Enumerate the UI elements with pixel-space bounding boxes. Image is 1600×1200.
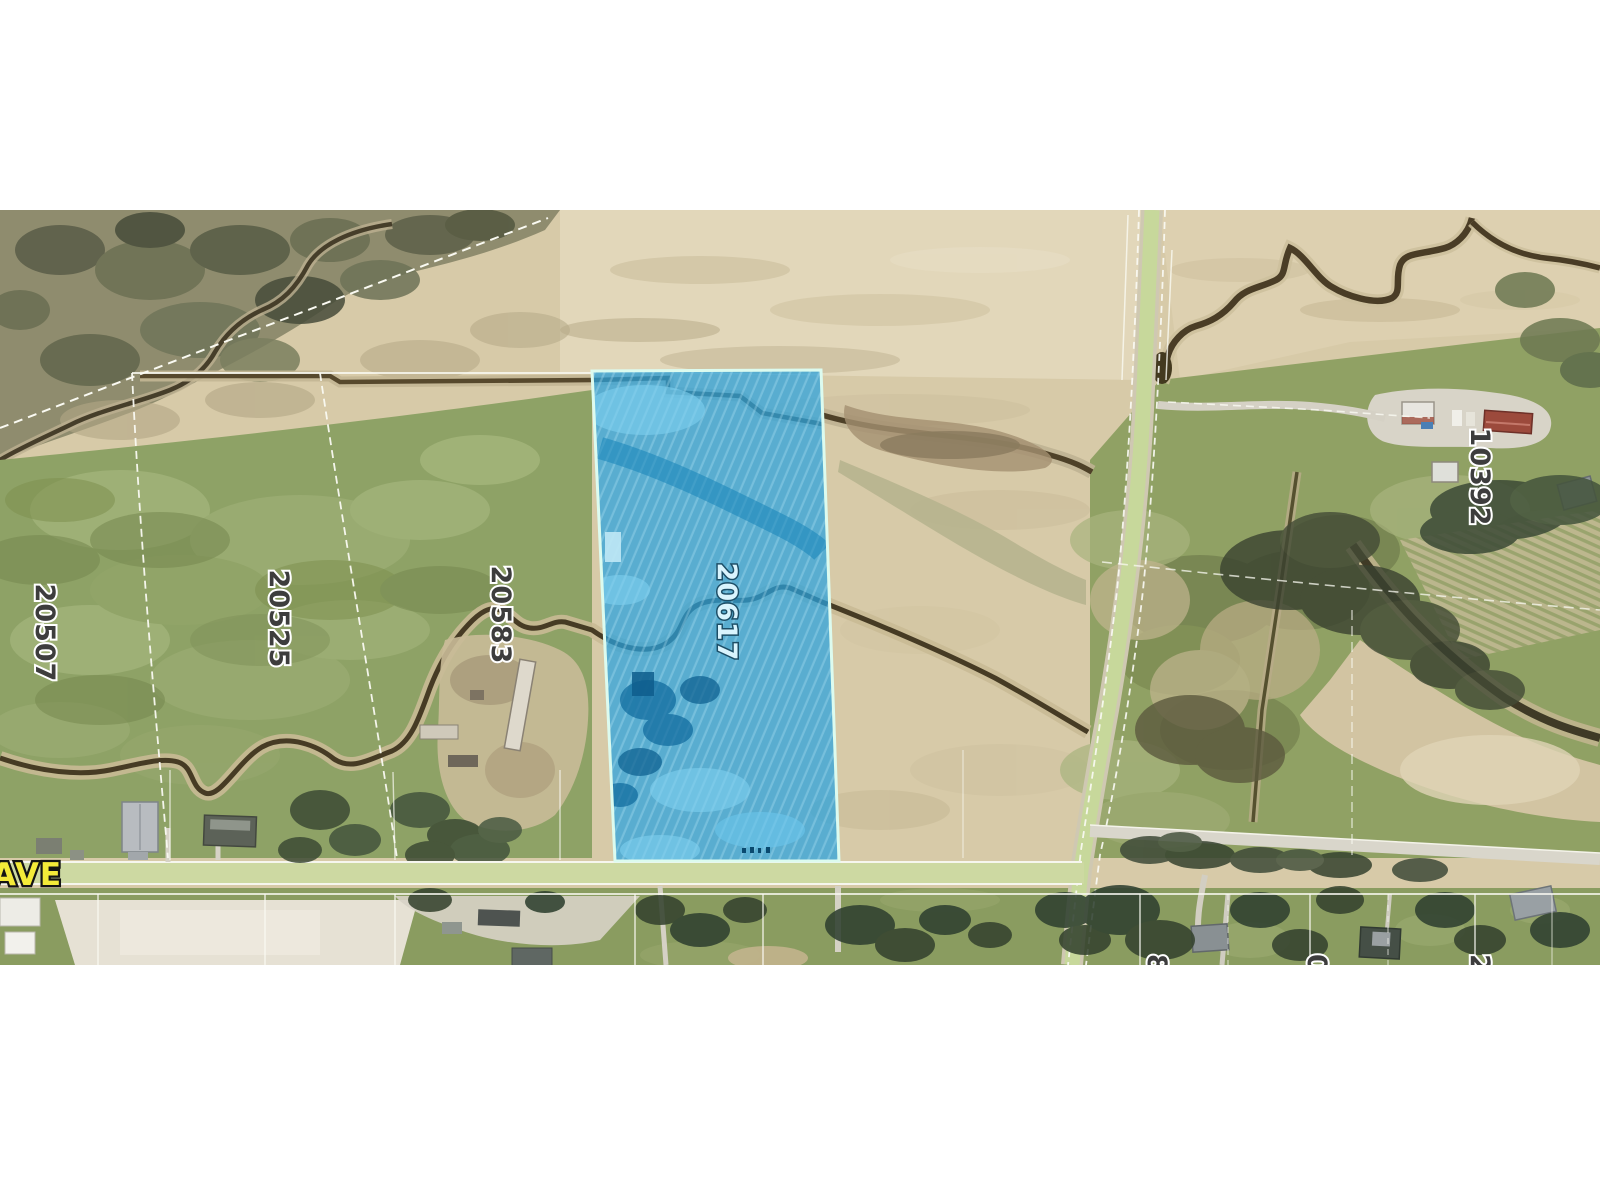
farm-shed	[1432, 462, 1458, 482]
partial-parcel-label-8: 8	[1141, 954, 1172, 965]
road-avenue	[0, 862, 1084, 884]
aerial-map-image: 20507 20525 20583 20617 10392 8 0 2 AVE	[0, 210, 1600, 965]
parcel-label-20525: 20525	[263, 570, 294, 669]
shed-in-parcel	[605, 532, 621, 562]
street-label-ave: AVE	[0, 857, 62, 893]
letterbox-bottom	[0, 965, 1600, 1200]
parcel-label-20507: 20507	[29, 584, 60, 683]
parcel-label-10392: 10392	[1464, 428, 1495, 527]
letterbox-top	[0, 0, 1600, 210]
partial-parcel-label-0: 0	[1301, 954, 1332, 965]
house	[1191, 924, 1229, 952]
parcel-label-20583: 20583	[485, 566, 516, 665]
map-canvas: 20507 20525 20583 20617 10392 8 0 2 AVE	[0, 210, 1600, 965]
building-in-parcel	[632, 672, 654, 696]
screenshot-page: 20507 20525 20583 20617 10392 8 0 2 AVE	[0, 0, 1600, 1200]
parcel-label-20617-highlighted: 20617	[711, 563, 742, 662]
partial-parcel-label-2: 2	[1464, 954, 1495, 965]
blue-container	[1421, 422, 1433, 429]
